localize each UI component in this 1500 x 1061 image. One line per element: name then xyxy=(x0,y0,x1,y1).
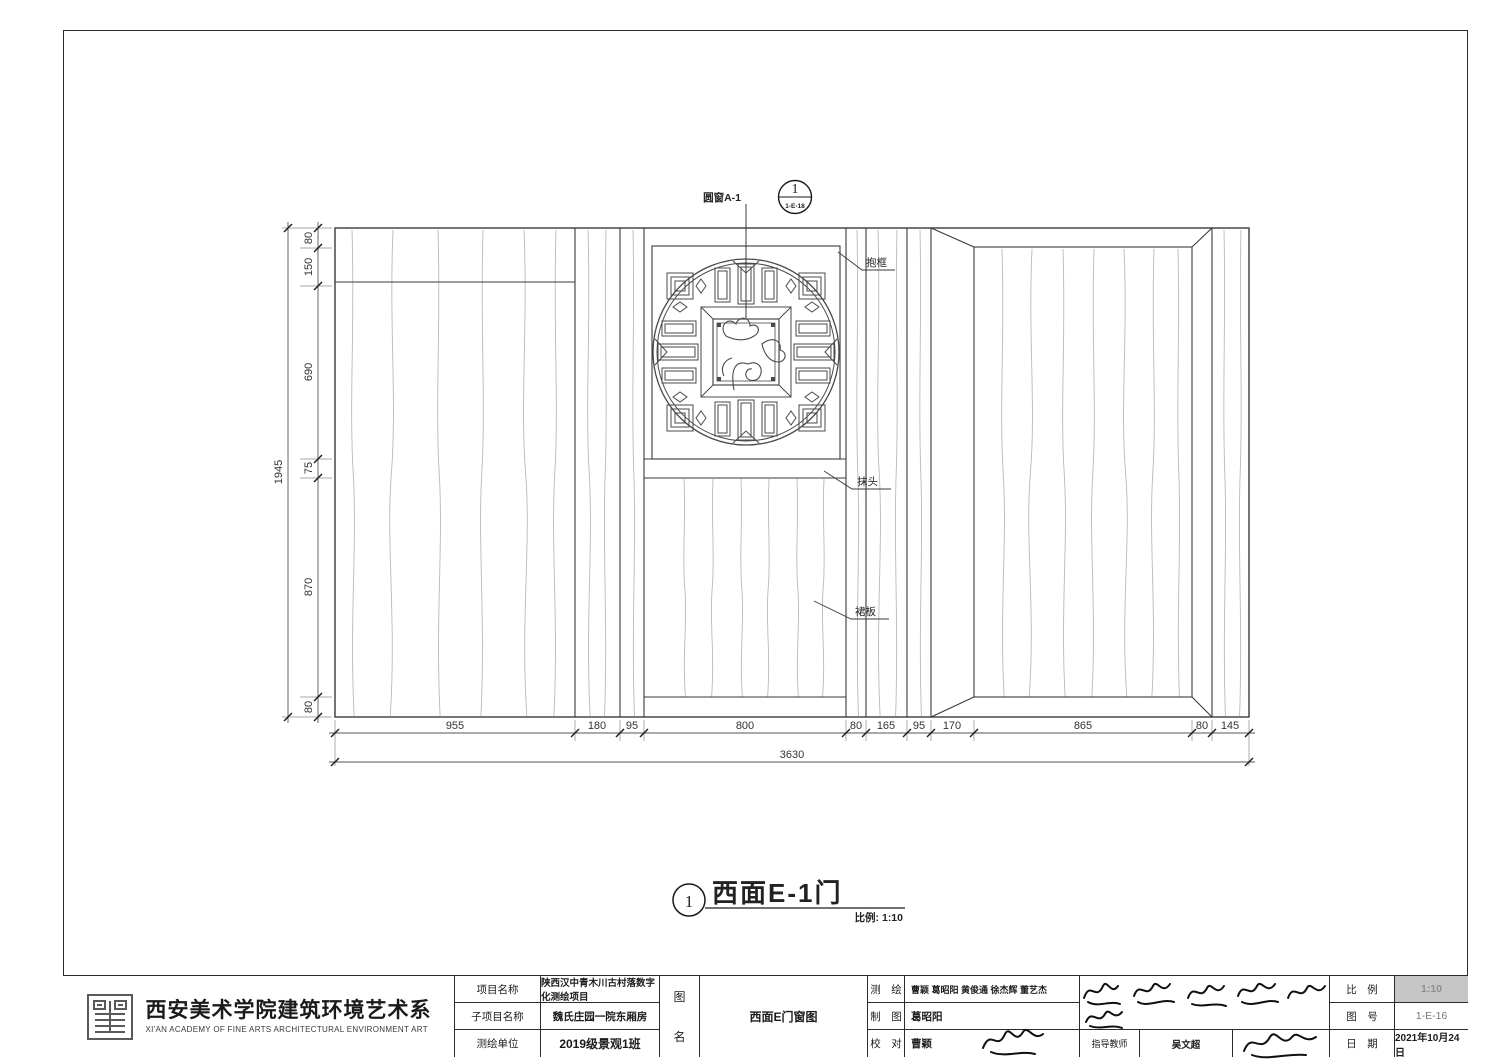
part-leaders xyxy=(814,252,895,619)
draft-label: 制 图 xyxy=(868,1003,905,1030)
scale-value: 1:10 xyxy=(1395,976,1468,1003)
advisor-label: 指导教师 xyxy=(1080,1030,1140,1057)
date-value: 2021年10月24日 xyxy=(1395,1030,1468,1057)
detail-callout: 圆窗A-1 1 1-E-18 xyxy=(703,181,811,319)
check-label: 校 对 xyxy=(868,1030,905,1057)
dim-label: 955 xyxy=(446,720,464,732)
advisor-signature xyxy=(1236,1027,1326,1061)
bottom-dimensions: 955 180 95 800 80 165 95 170 865 80 145 … xyxy=(329,720,1255,766)
advisor-signature-cell xyxy=(1233,1030,1330,1057)
dim-label: 80 xyxy=(850,720,862,732)
callout-number: 1 xyxy=(792,182,799,197)
academy-logo-icon xyxy=(86,993,134,1041)
dim-total-label: 3630 xyxy=(780,749,804,761)
signatures-cell xyxy=(1080,976,1330,1030)
figure-label-char: 图 xyxy=(673,988,685,1005)
org-cell: 西安美术学院建筑环境艺术系 XI'AN ACADEMY OF FINE ARTS… xyxy=(63,976,455,1057)
dim-label: 80 xyxy=(303,232,315,244)
elevation-structure xyxy=(335,228,1249,717)
title-text: 西面E-1门 xyxy=(712,878,842,908)
dim-label: 95 xyxy=(913,720,925,732)
date-label: 日 期 xyxy=(1330,1030,1395,1057)
callout-label: 圆窗A-1 xyxy=(703,191,741,204)
dim-label: 165 xyxy=(877,720,895,732)
figure-label-char: 名 xyxy=(673,1028,685,1045)
title-scale-note: 比例: 1:10 xyxy=(855,911,904,924)
check-signature xyxy=(977,1022,1057,1061)
subproject-value: 魏氏庄园一院东厢房 xyxy=(541,1003,660,1030)
dim-label: 800 xyxy=(736,720,754,732)
dim-label: 80 xyxy=(1196,720,1208,732)
survey-unit-label: 测绘单位 xyxy=(455,1030,541,1057)
crew-signatures xyxy=(1080,976,1330,1030)
part-label-qunban: 裙板 xyxy=(855,605,876,618)
project-label: 项目名称 xyxy=(455,976,541,1003)
dim-label: 95 xyxy=(626,720,638,732)
dim-label: 690 xyxy=(303,363,315,381)
org-name-en: XI'AN ACADEMY OF FINE ARTS ARCHITECTURAL… xyxy=(146,1025,432,1034)
dim-label: 180 xyxy=(588,720,606,732)
callout-ref: 1-E-18 xyxy=(785,203,805,210)
subproject-label: 子项目名称 xyxy=(455,1003,541,1030)
dim-label: 75 xyxy=(303,462,315,474)
dim-label: 150 xyxy=(303,258,315,276)
advisor-value: 吴文超 xyxy=(1140,1030,1233,1057)
project-value: 陕西汉中青木川古村落数字化测绘项目 xyxy=(541,976,660,1003)
title-block: 西安美术学院建筑环境艺术系 XI'AN ACADEMY OF FINE ARTS… xyxy=(63,975,1468,1056)
scale-label: 比 例 xyxy=(1330,976,1395,1003)
survey-value: 曹颖 葛昭阳 黄俊通 徐杰辉 董艺杰 xyxy=(905,976,1080,1003)
check-value: 曹颖 xyxy=(911,1036,932,1051)
part-label-baokuang: 抱框 xyxy=(866,256,887,269)
dim-label: 80 xyxy=(303,701,315,713)
org-name-cn: 西安美术学院建筑环境艺术系 xyxy=(146,999,432,1022)
dim-label: 170 xyxy=(943,720,961,732)
dim-total-label: 1945 xyxy=(273,460,285,484)
drawing-sheet: 圆窗A-1 1 1-E-18 抱框 抹头 裙板 955 xyxy=(0,0,1500,1061)
flower-carving-icon xyxy=(722,318,785,390)
elevation-title: 1 西面E-1门 比例: 1:10 xyxy=(673,878,905,924)
title-number: 1 xyxy=(685,892,694,911)
wood-grain-lines xyxy=(352,230,1242,716)
part-label-motou: 抹头 xyxy=(857,475,878,488)
figure-name-value: 西面E门窗图 xyxy=(700,976,868,1057)
figno-value: 1-E-16 xyxy=(1395,1003,1468,1030)
elevation-drawing: 圆窗A-1 1 1-E-18 抱框 抹头 裙板 955 xyxy=(0,0,1500,1061)
check-value-cell: 曹颖 xyxy=(905,1030,1080,1057)
survey-unit-value: 2019级景观1班 xyxy=(541,1030,660,1057)
survey-label: 测 绘 xyxy=(868,976,905,1003)
dim-label: 865 xyxy=(1074,720,1092,732)
figno-label: 图 号 xyxy=(1330,1003,1395,1030)
figure-name-label: 图 名 xyxy=(660,976,700,1057)
left-dimensions: 80 150 690 75 870 80 1945 xyxy=(273,222,332,723)
dim-label: 145 xyxy=(1221,720,1239,732)
dim-label: 870 xyxy=(303,578,315,596)
